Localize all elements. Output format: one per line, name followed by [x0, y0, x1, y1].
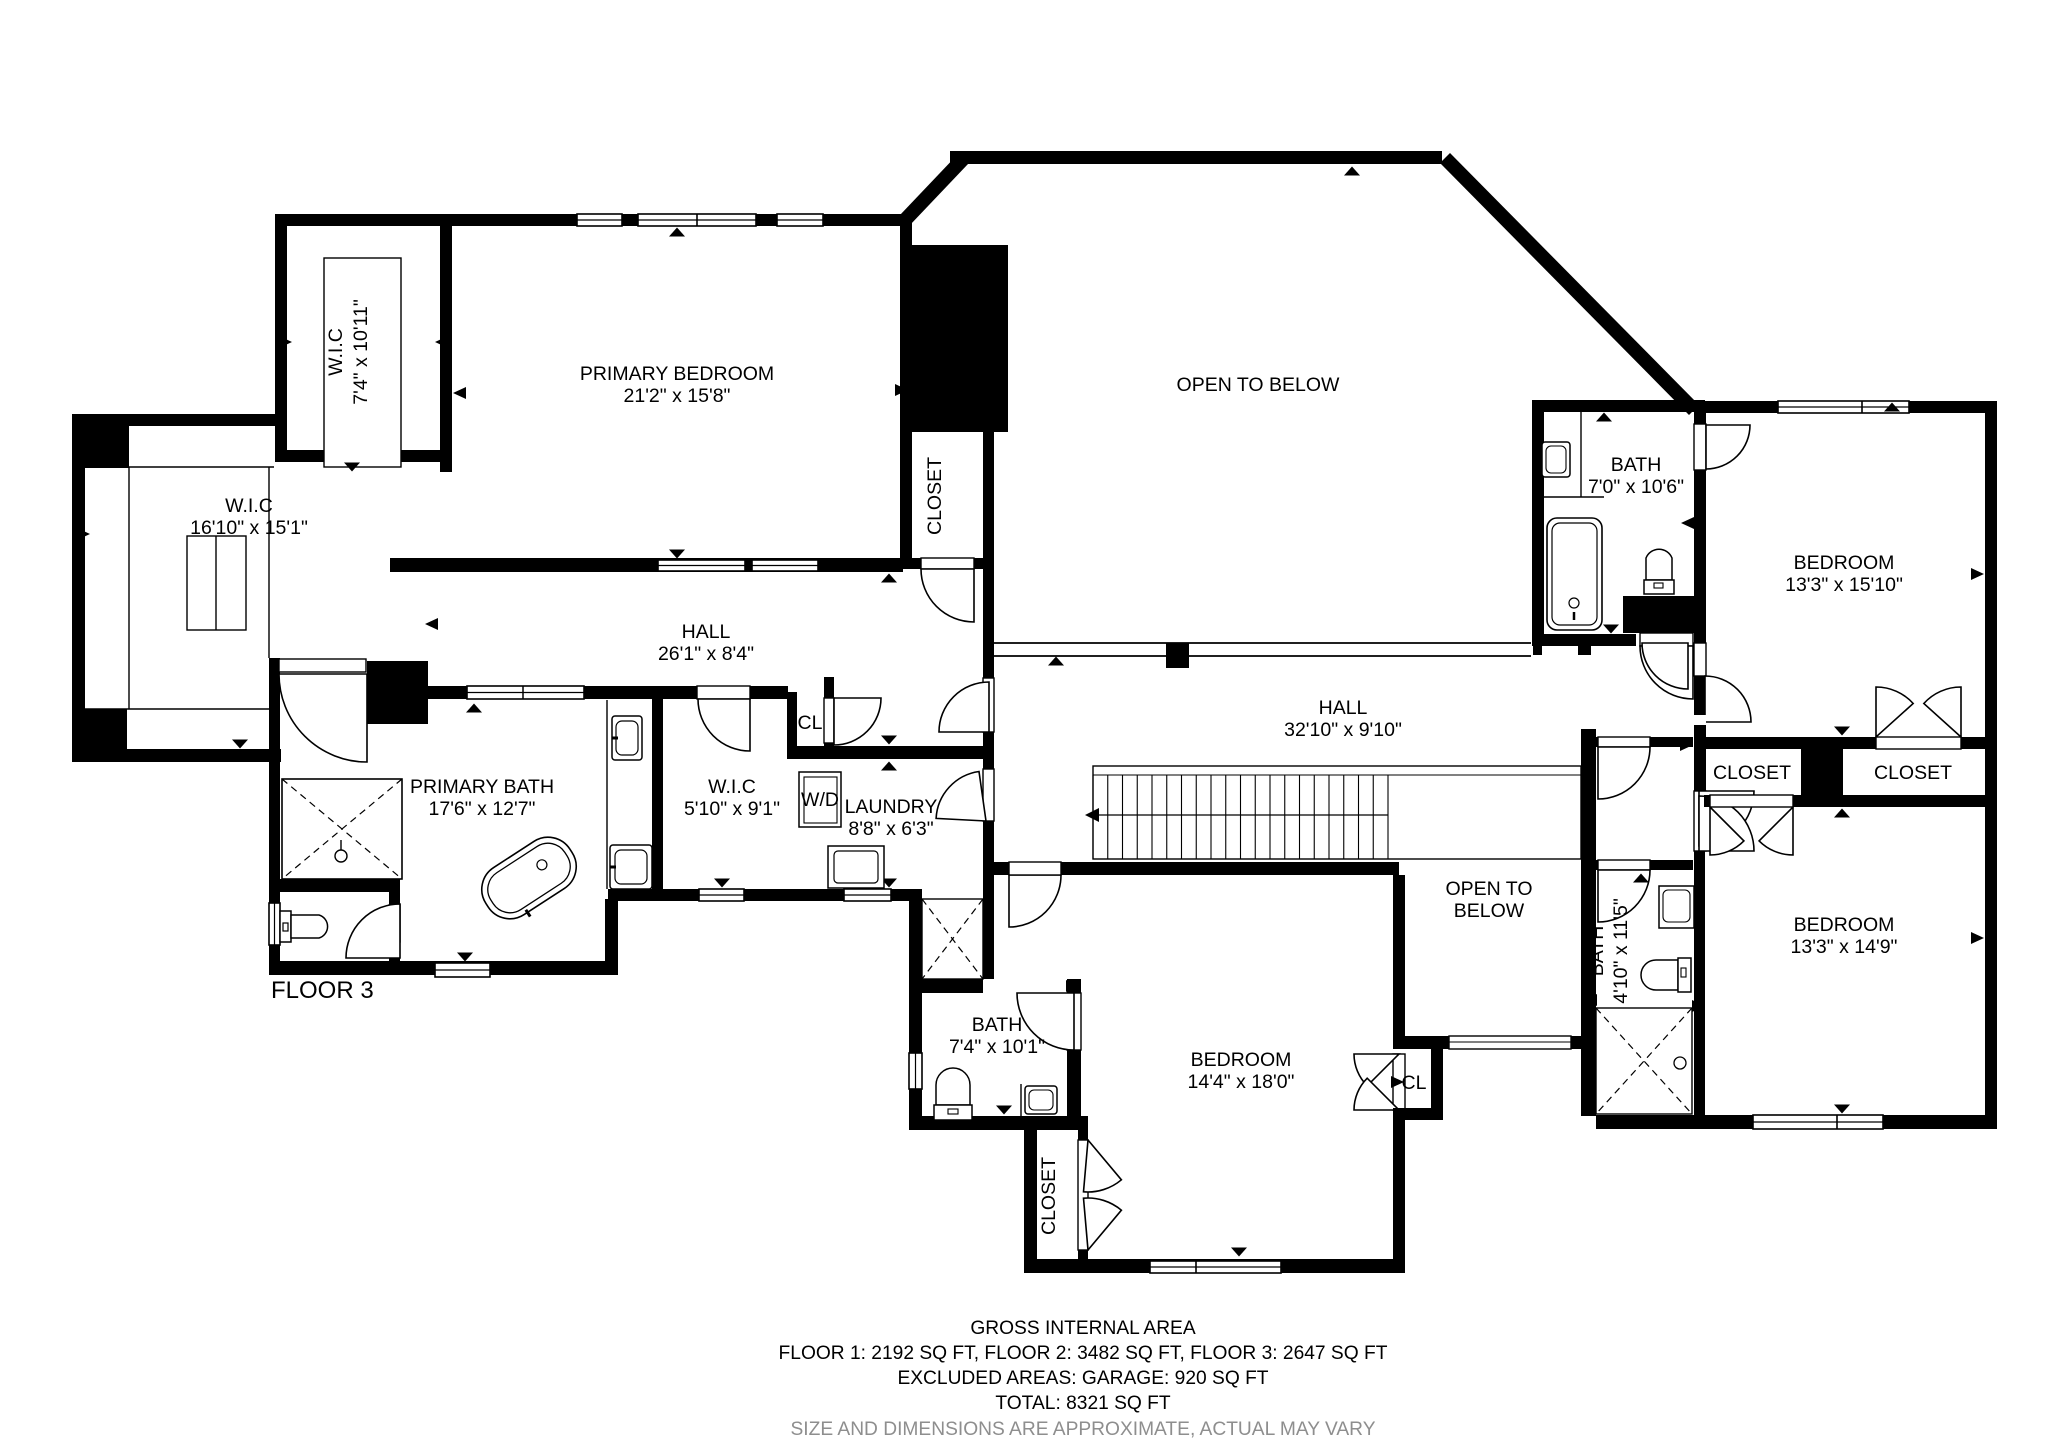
svg-text:4'10" x 11'5": 4'10" x 11'5"	[1610, 898, 1632, 1004]
svg-text:W.I.C: W.I.C	[225, 495, 273, 517]
svg-text:5'10" x 9'1": 5'10" x 9'1"	[684, 798, 780, 820]
svg-text:21'2" x 15'8": 21'2" x 15'8"	[624, 385, 731, 407]
svg-text:OPEN TO: OPEN TO	[1445, 878, 1532, 900]
svg-text:EXCLUDED AREAS: GARAGE: 920 SQ: EXCLUDED AREAS: GARAGE: 920 SQ FT	[897, 1368, 1268, 1389]
svg-text:FLOOR 3: FLOOR 3	[271, 977, 374, 1004]
svg-text:BATH: BATH	[1586, 926, 1608, 977]
svg-text:13'3" x 15'10": 13'3" x 15'10"	[1785, 574, 1903, 596]
svg-text:SIZE AND DIMENSIONS ARE APPROX: SIZE AND DIMENSIONS ARE APPROXIMATE, ACT…	[790, 1419, 1375, 1440]
svg-text:8'8" x 6'3": 8'8" x 6'3"	[848, 818, 933, 840]
svg-text:CLOSET: CLOSET	[1874, 762, 1952, 784]
svg-text:OPEN TO BELOW: OPEN TO BELOW	[1177, 374, 1340, 396]
svg-text:7'4" x 10'1": 7'4" x 10'1"	[949, 1036, 1045, 1058]
svg-text:HALL: HALL	[682, 621, 731, 643]
svg-text:17'6" x 12'7": 17'6" x 12'7"	[429, 798, 536, 820]
svg-text:BEDROOM: BEDROOM	[1191, 1049, 1292, 1071]
svg-text:PRIMARY BATH: PRIMARY BATH	[410, 776, 554, 798]
svg-text:W.I.C: W.I.C	[325, 328, 347, 376]
svg-text:CLOSET: CLOSET	[1713, 762, 1791, 784]
svg-text:LAUNDRY: LAUNDRY	[845, 796, 938, 818]
svg-text:GROSS INTERNAL AREA: GROSS INTERNAL AREA	[970, 1318, 1196, 1339]
svg-text:W/D: W/D	[801, 789, 839, 811]
svg-text:7'0" x 10'6": 7'0" x 10'6"	[1588, 476, 1684, 498]
svg-text:HALL: HALL	[1319, 697, 1368, 719]
svg-text:TOTAL: 8321 SQ FT: TOTAL: 8321 SQ FT	[995, 1393, 1171, 1414]
svg-text:16'10" x 15'1": 16'10" x 15'1"	[190, 517, 308, 539]
svg-text:CL: CL	[1402, 1072, 1427, 1094]
svg-text:W.I.C: W.I.C	[708, 776, 756, 798]
svg-text:PRIMARY BEDROOM: PRIMARY BEDROOM	[580, 363, 774, 385]
svg-text:BELOW: BELOW	[1454, 900, 1525, 922]
svg-text:BATH: BATH	[1611, 454, 1662, 476]
svg-text:7'4" x 10'11": 7'4" x 10'11"	[350, 299, 372, 405]
svg-text:13'3" x 14'9": 13'3" x 14'9"	[1791, 936, 1898, 958]
svg-text:CLOSET: CLOSET	[924, 457, 946, 535]
svg-text:BATH: BATH	[972, 1014, 1023, 1036]
svg-text:FLOOR 1: 2192 SQ FT, FLOOR 2:: FLOOR 1: 2192 SQ FT, FLOOR 2: 3482 SQ FT…	[779, 1343, 1388, 1364]
svg-text:BEDROOM: BEDROOM	[1794, 552, 1895, 574]
svg-text:14'4" x 18'0": 14'4" x 18'0"	[1188, 1071, 1295, 1093]
svg-text:CLOSET: CLOSET	[1038, 1157, 1060, 1235]
svg-text:32'10" x 9'10": 32'10" x 9'10"	[1284, 719, 1402, 741]
svg-text:26'1" x 8'4": 26'1" x 8'4"	[658, 643, 754, 665]
svg-text:BEDROOM: BEDROOM	[1794, 914, 1895, 936]
svg-text:CL: CL	[798, 712, 823, 734]
